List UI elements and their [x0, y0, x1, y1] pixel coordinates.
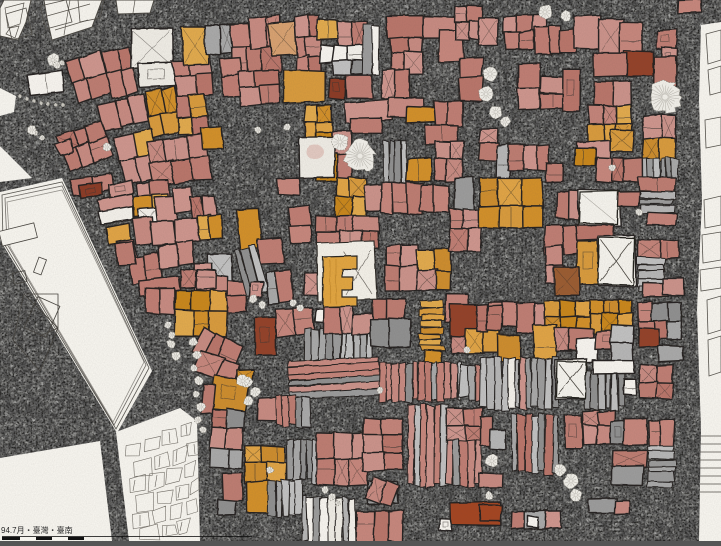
svg-text:94.7月・臺灣・臺南: 94.7月・臺灣・臺南: [1, 525, 73, 535]
